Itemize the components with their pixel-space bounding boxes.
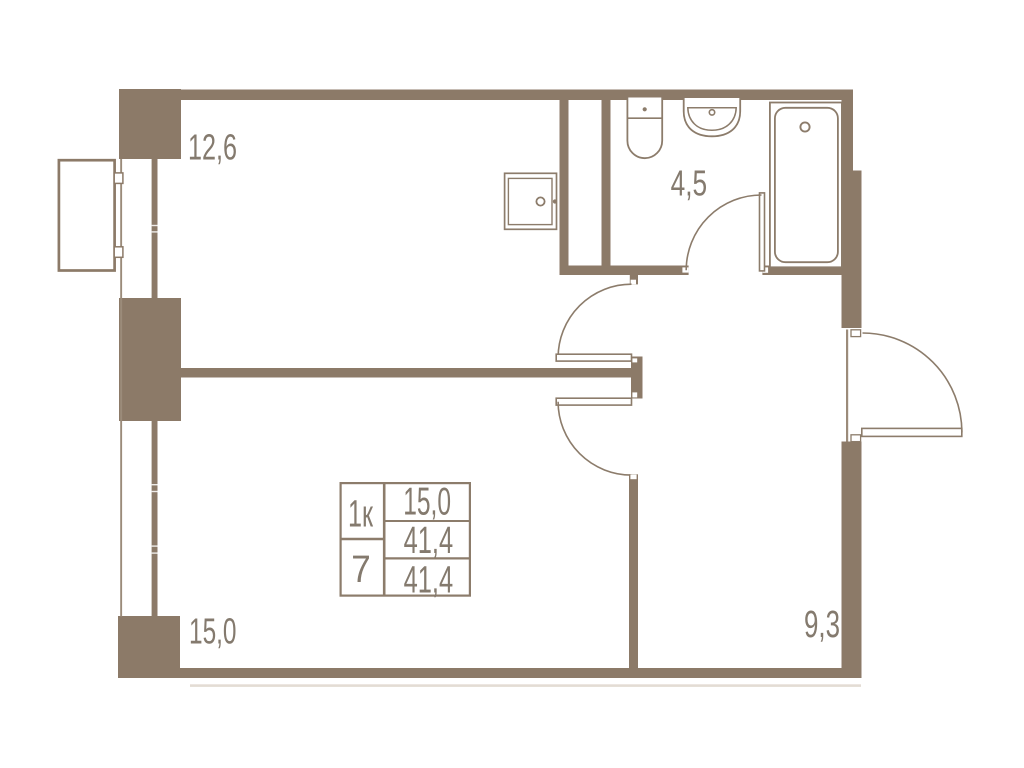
svg-text:1к: 1к <box>348 494 373 536</box>
svg-text:15,0: 15,0 <box>189 611 237 652</box>
svg-text:7: 7 <box>351 549 371 591</box>
svg-text:41,4: 41,4 <box>404 520 454 562</box>
svg-text:9,3: 9,3 <box>804 604 840 646</box>
svg-text:12,6: 12,6 <box>188 127 237 168</box>
svg-text:41,4: 41,4 <box>404 560 454 602</box>
svg-text:4,5: 4,5 <box>671 163 708 204</box>
svg-text:15,0: 15,0 <box>403 481 451 524</box>
